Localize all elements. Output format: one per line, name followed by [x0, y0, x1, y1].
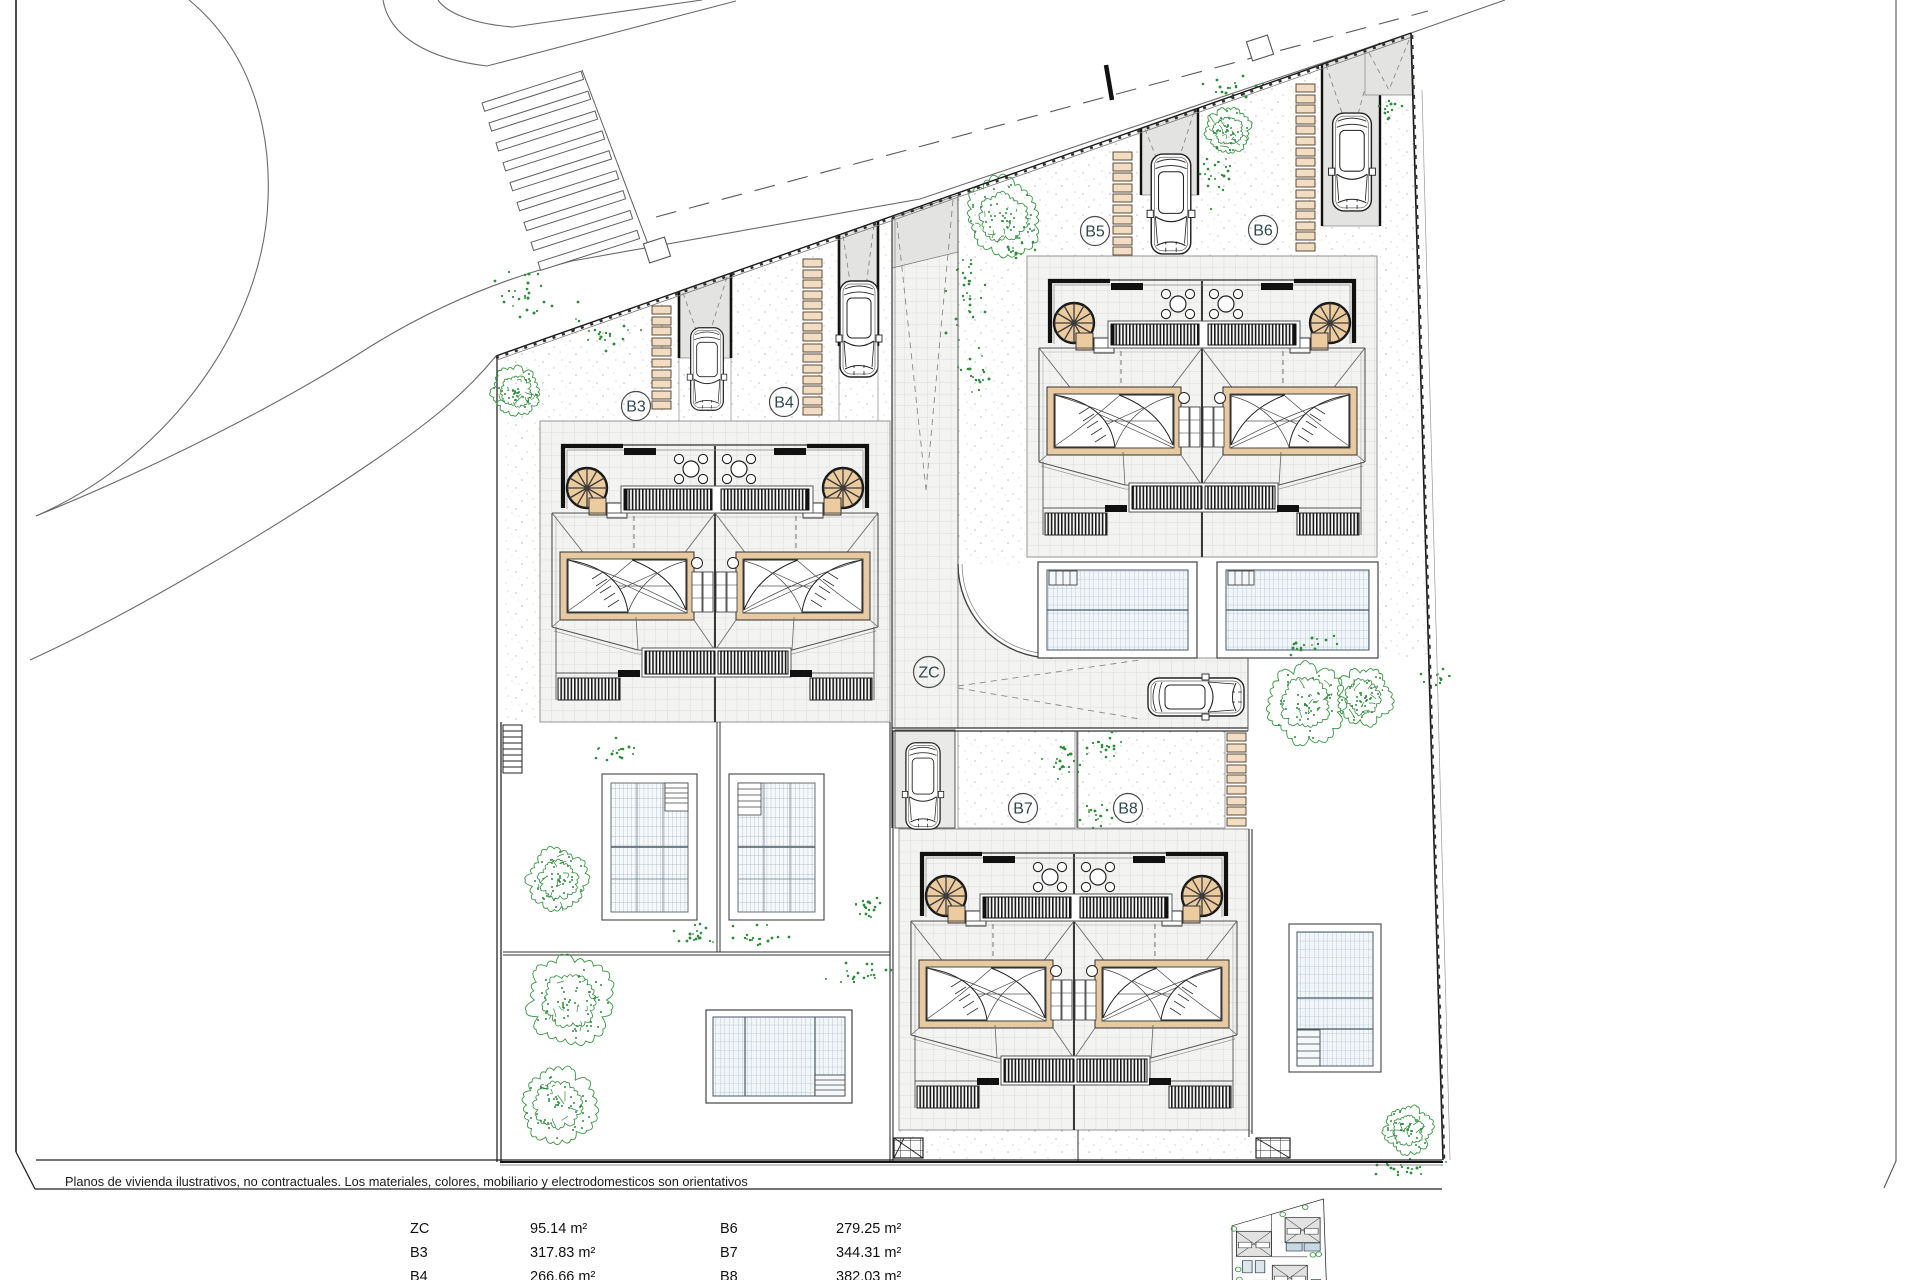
svg-text:95.14 m²: 95.14 m²: [530, 1221, 587, 1237]
svg-text:Planos de vivienda ilustrativo: Planos de vivienda ilustrativos, no cont…: [65, 1174, 748, 1189]
svg-text:B7: B7: [1013, 801, 1033, 818]
svg-text:B6: B6: [720, 1221, 738, 1237]
svg-text:266.66 m²: 266.66 m²: [530, 1269, 595, 1280]
svg-text:279.25 m²: 279.25 m²: [836, 1221, 901, 1237]
svg-text:B8: B8: [720, 1269, 738, 1280]
svg-text:B3: B3: [626, 399, 646, 416]
svg-text:B6: B6: [1253, 223, 1273, 240]
svg-text:ZC: ZC: [918, 665, 939, 682]
svg-text:B8: B8: [1118, 801, 1138, 818]
svg-text:317.83 m²: 317.83 m²: [530, 1245, 595, 1261]
svg-text:382.03 m²: 382.03 m²: [836, 1269, 901, 1280]
svg-text:B5: B5: [1085, 224, 1105, 241]
svg-text:344.31 m²: 344.31 m²: [836, 1245, 901, 1261]
svg-text:B3: B3: [410, 1245, 428, 1261]
svg-text:B4: B4: [410, 1269, 428, 1280]
svg-text:B4: B4: [774, 395, 794, 412]
svg-text:ZC: ZC: [410, 1221, 429, 1237]
svg-text:B7: B7: [720, 1245, 738, 1261]
